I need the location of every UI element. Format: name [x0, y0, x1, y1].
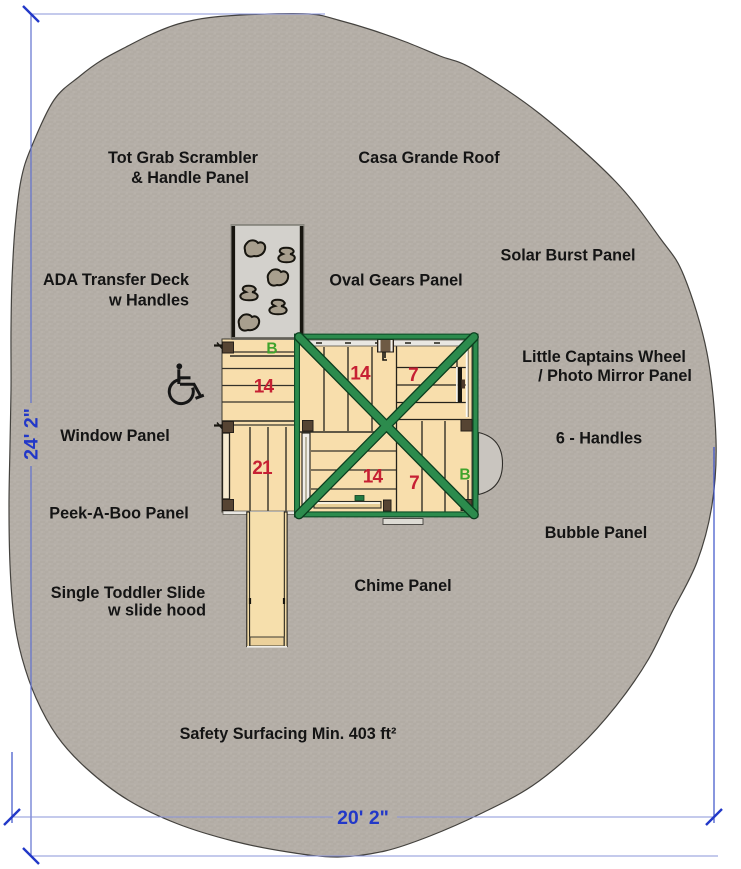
svg-text:14: 14 [254, 377, 275, 398]
svg-text:14: 14 [363, 467, 384, 488]
svg-text:B: B [459, 467, 470, 484]
svg-text:24' 2": 24' 2" [21, 408, 43, 460]
svg-text:Chime Panel: Chime Panel [354, 577, 451, 595]
svg-text:B: B [266, 341, 277, 358]
svg-text:ADA Transfer Deck: ADA Transfer Deck [43, 271, 190, 289]
svg-text:14: 14 [350, 364, 371, 385]
svg-text:Single Toddler Slide: Single Toddler Slide [51, 584, 205, 602]
svg-text:7: 7 [409, 473, 419, 494]
svg-text:& Handle Panel: & Handle Panel [131, 169, 249, 187]
svg-text:Little Captains Wheel: Little Captains Wheel [522, 348, 686, 366]
svg-text:Solar Burst Panel: Solar Burst Panel [501, 247, 636, 265]
svg-text:Window Panel: Window Panel [60, 427, 170, 445]
svg-text:w Handles: w Handles [108, 292, 189, 310]
svg-text:w slide hood: w slide hood [107, 602, 206, 620]
svg-text:Peek-A-Boo Panel: Peek-A-Boo Panel [49, 505, 188, 523]
svg-text:Bubble Panel: Bubble Panel [545, 524, 648, 542]
svg-text:Tot Grab Scrambler: Tot Grab Scrambler [108, 149, 259, 167]
svg-text:7: 7 [408, 365, 418, 386]
svg-text:21: 21 [252, 458, 273, 479]
svg-text:6 - Handles: 6 - Handles [556, 430, 642, 448]
svg-text:Casa Grande Roof: Casa Grande Roof [358, 149, 500, 167]
svg-text:/ Photo Mirror Panel: / Photo Mirror Panel [538, 367, 692, 385]
svg-text:20' 2": 20' 2" [337, 807, 389, 829]
svg-text:Safety Surfacing Min. 403 ft²: Safety Surfacing Min. 403 ft² [180, 725, 397, 743]
svg-text:Oval Gears Panel: Oval Gears Panel [329, 272, 462, 290]
